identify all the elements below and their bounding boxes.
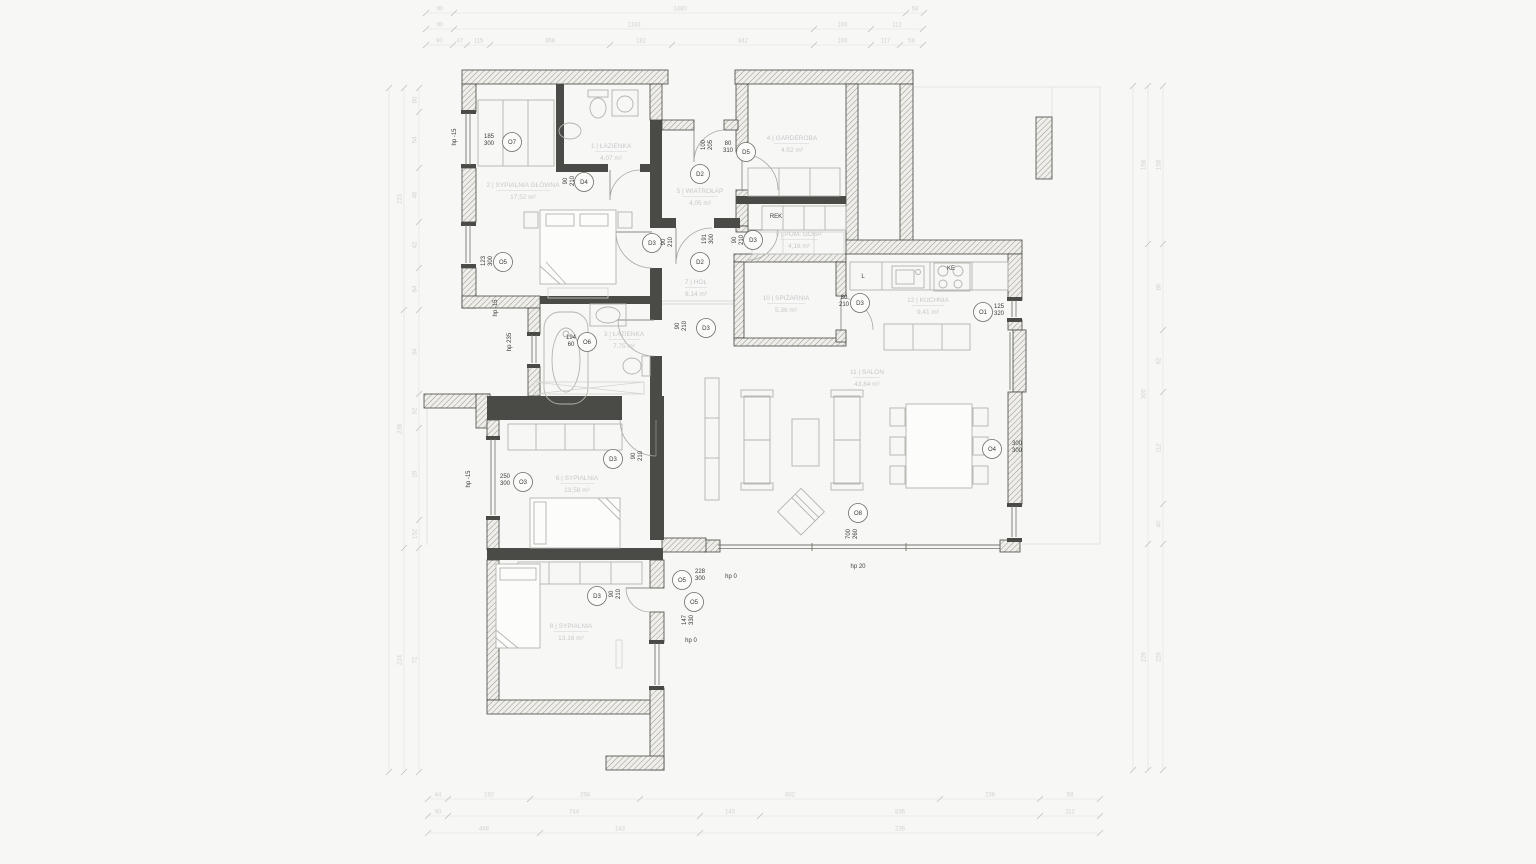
opening-ref: D3 bbox=[702, 326, 710, 332]
chain-dim: 62 bbox=[1157, 357, 1163, 364]
level-annotation: KE bbox=[947, 266, 955, 272]
opening-dim: 90210 bbox=[661, 236, 674, 247]
room-label: 7 | HOL bbox=[685, 279, 708, 286]
chain-dim: 223 bbox=[398, 193, 404, 204]
chain-dim: 226 bbox=[1157, 651, 1163, 662]
chain-dim: 44 bbox=[435, 793, 442, 799]
chain-dim: 80 bbox=[413, 96, 419, 103]
chain-dim: 236 bbox=[895, 827, 906, 833]
chain-dim: 112 bbox=[1065, 810, 1075, 816]
chair bbox=[890, 466, 905, 484]
chain-dim: 86 bbox=[1157, 283, 1163, 290]
opening-dim: 125320 bbox=[994, 304, 1005, 317]
chain-dim: 115 bbox=[474, 39, 484, 45]
chain-dim: 117 bbox=[881, 39, 891, 45]
toilet-tank bbox=[642, 356, 650, 376]
chain-dim: 182 bbox=[636, 39, 647, 45]
opening-ref: O5 bbox=[499, 260, 508, 266]
tv-unit bbox=[705, 378, 719, 500]
dim-height: 300 bbox=[484, 141, 495, 147]
chain-dim: 448 bbox=[479, 827, 490, 833]
opening-dim: 300300 bbox=[1012, 441, 1023, 454]
nightstand bbox=[524, 212, 538, 228]
room-area: 9,41 m² bbox=[917, 309, 940, 316]
chain-dim: 836 bbox=[895, 810, 906, 816]
dim-width: 191 bbox=[702, 233, 708, 244]
chain-dim: 72 bbox=[413, 656, 419, 663]
dim-width: 90 bbox=[732, 236, 738, 243]
dim-width: 228 bbox=[695, 569, 706, 575]
level-annotation: hp -15 bbox=[452, 128, 458, 146]
opening-ref: D3 bbox=[648, 241, 656, 247]
walls-interior bbox=[461, 84, 1022, 690]
chain-dim: 58 bbox=[912, 7, 919, 13]
opening-dim: 90210 bbox=[609, 588, 622, 599]
opening-dim: 250300 bbox=[500, 474, 511, 487]
opening-ref: O1 bbox=[979, 310, 988, 316]
opening-dim: 80310 bbox=[723, 141, 734, 154]
toilet-icon bbox=[623, 358, 641, 374]
dim-height: 210 bbox=[682, 320, 688, 331]
dim-height: 60 bbox=[568, 342, 575, 348]
chair bbox=[890, 437, 905, 455]
room-area: 5,36 m² bbox=[775, 307, 798, 314]
chain-dim: 40 bbox=[1157, 520, 1163, 527]
chain-dim: 158 bbox=[1157, 159, 1163, 170]
chain-dim: 298 bbox=[580, 793, 591, 799]
opening-ref: O5 bbox=[690, 600, 699, 606]
chain-dim: 300 bbox=[1142, 388, 1148, 399]
opening-ref: O3 bbox=[519, 480, 528, 486]
dim-height: 210 bbox=[570, 175, 576, 186]
kitchen-island bbox=[884, 324, 970, 350]
room-area: 7,75 m² bbox=[613, 343, 636, 350]
chain-dim: 143 bbox=[725, 810, 736, 816]
room-area: 13,16 m² bbox=[558, 635, 584, 642]
dim-width: 80 bbox=[841, 295, 848, 301]
chain-dim: 183 bbox=[837, 39, 848, 45]
room-label: 6 | SYPIALNIA bbox=[556, 475, 599, 482]
dim-height: 210 bbox=[616, 588, 622, 599]
dim-height: 300 bbox=[709, 233, 715, 244]
opening-dim: 185300 bbox=[484, 134, 495, 147]
opening-ref: D5 bbox=[742, 150, 750, 156]
chain-dim: 158 bbox=[1142, 159, 1148, 170]
room-area: 13,58 m² bbox=[564, 487, 590, 494]
bed bbox=[540, 210, 616, 284]
room-label: 4 | GARDEROBA bbox=[767, 135, 818, 142]
chain-dim: 58 bbox=[908, 39, 915, 45]
chair bbox=[973, 466, 988, 484]
room-area: 4,07 m² bbox=[600, 155, 623, 162]
furniture bbox=[478, 90, 1008, 668]
chain-dim: 226 bbox=[1142, 651, 1148, 662]
dim-height: 260 bbox=[853, 528, 859, 539]
chain-dim: 54 bbox=[413, 136, 419, 143]
room-label: 8 | SYPIALNIA bbox=[550, 623, 593, 630]
dim-width: 123 bbox=[481, 255, 487, 266]
dim-width: 90 bbox=[631, 452, 637, 459]
opening-dim: 90210 bbox=[732, 234, 745, 245]
dim-height: 210 bbox=[638, 450, 644, 461]
opening-dim: 90210 bbox=[675, 320, 688, 331]
chain-dim: 744 bbox=[569, 810, 580, 816]
opening-ref: O8 bbox=[854, 511, 863, 517]
dim-width: 250 bbox=[500, 474, 511, 480]
chain-dim: 112 bbox=[1157, 443, 1163, 453]
level-annotation: hp -15 bbox=[493, 299, 499, 317]
room-area: 4,16 m² bbox=[788, 243, 811, 250]
dim-height: 310 bbox=[723, 148, 734, 154]
dim-height: 210 bbox=[668, 236, 674, 247]
opening-ref: D2 bbox=[696, 260, 704, 266]
opening-dim: 147330 bbox=[682, 614, 695, 625]
opening-ref: O4 bbox=[988, 447, 997, 453]
dim-height: 300 bbox=[1012, 448, 1023, 454]
chain-dim: 46 bbox=[413, 191, 419, 198]
chain-dim: 802 bbox=[785, 793, 796, 799]
kitchen-counter bbox=[850, 262, 1008, 290]
dim-height: 300 bbox=[488, 255, 494, 266]
dim-width: 125 bbox=[994, 304, 1005, 310]
chain-dim: 92 bbox=[413, 407, 419, 414]
level-annotation: hp 0 bbox=[685, 638, 697, 644]
chain-dim: 183 bbox=[837, 23, 848, 29]
dim-height: 210 bbox=[839, 302, 850, 308]
level-annotation: L bbox=[861, 274, 865, 280]
dim-height: 300 bbox=[500, 481, 511, 487]
toilet-tank bbox=[588, 90, 608, 97]
dim-height: 330 bbox=[689, 614, 695, 625]
opening-dim: 123300 bbox=[481, 255, 494, 266]
level-annotation: hp 0 bbox=[725, 574, 737, 580]
chain-dim: 34 bbox=[413, 348, 419, 355]
chain-dim: 842 bbox=[738, 39, 749, 45]
dim-width: 700 bbox=[846, 528, 852, 539]
room-label: 12 | KUCHNIA bbox=[907, 297, 949, 304]
opening-dim: 90210 bbox=[563, 175, 576, 186]
dim-height: 205 bbox=[708, 139, 714, 150]
chain-dim: 47 bbox=[457, 39, 464, 45]
opening-ref: D4 bbox=[580, 180, 588, 186]
opening-dim: 700260 bbox=[846, 528, 859, 539]
opening-dim: 191300 bbox=[702, 233, 715, 244]
dim-width: 300 bbox=[1012, 441, 1023, 447]
toilet-icon bbox=[590, 98, 606, 118]
chain-dim: 1183 bbox=[628, 23, 642, 29]
chain-dim: 152 bbox=[413, 528, 419, 539]
dim-width: 185 bbox=[484, 134, 495, 140]
chain-dim: 90 bbox=[437, 7, 444, 13]
chain-dim: 238 bbox=[985, 793, 996, 799]
dim-width: 194 bbox=[566, 335, 577, 341]
opening-dim: 228300 bbox=[695, 569, 706, 582]
dining-table bbox=[906, 404, 972, 488]
room-label: 1 | ŁAZIENKA bbox=[591, 143, 632, 150]
chain-dim: 238 bbox=[398, 423, 404, 434]
dim-width: 90 bbox=[675, 322, 681, 329]
dim-width: 90 bbox=[661, 238, 667, 245]
room-label: 9 | POM. GOSP. bbox=[775, 231, 822, 238]
opening-dim: 80210 bbox=[839, 295, 850, 308]
chair bbox=[973, 408, 988, 426]
dim-height: 300 bbox=[695, 576, 706, 582]
dim-height: 320 bbox=[994, 311, 1005, 317]
chair bbox=[890, 408, 905, 426]
floor-plan-canvas: 1 | ŁAZIENKA4,07 m²2 | SYPIALNIA GŁÓWNA1… bbox=[0, 0, 1536, 864]
level-annotation: hp 235 bbox=[507, 332, 513, 351]
opening-ref: D3 bbox=[609, 457, 617, 463]
room-label: 3 | ŁAZIENKA bbox=[604, 331, 645, 338]
level-annotation: hp 20 bbox=[850, 564, 866, 570]
opening-dim: 100205 bbox=[701, 139, 714, 150]
chain-dim: 84 bbox=[413, 285, 419, 292]
opening-ref: D3 bbox=[749, 238, 757, 244]
room-label: 2 | SYPIALNIA GŁÓWNA bbox=[487, 180, 561, 189]
armchair bbox=[778, 488, 825, 535]
room-area: 4,05 m² bbox=[689, 200, 712, 207]
opening-dim: 19460 bbox=[566, 335, 577, 348]
dim-width: 147 bbox=[682, 614, 688, 625]
chain-dim: 42 bbox=[413, 241, 419, 248]
level-annotation: hp -15 bbox=[466, 470, 472, 488]
room-area: 4,52 m² bbox=[781, 147, 804, 154]
chain-dim: 1480 bbox=[673, 7, 687, 13]
chain-dim: 143 bbox=[615, 827, 626, 833]
opening-ref: D2 bbox=[696, 172, 704, 178]
room-area: 8,14 m² bbox=[685, 291, 708, 298]
room-label: 10 | SPIŻARNIA bbox=[763, 293, 811, 302]
bed bbox=[530, 498, 620, 548]
dim-height: 210 bbox=[739, 234, 745, 245]
chain-dim: 28 bbox=[413, 470, 419, 477]
kitchen-sink-icon bbox=[892, 266, 924, 288]
opening-ref: D3 bbox=[593, 594, 601, 600]
dim-width: 80 bbox=[725, 141, 732, 147]
room-label: 11 | SALON bbox=[850, 369, 884, 376]
chain-dim: 90 bbox=[435, 810, 442, 816]
chain-dim: 192 bbox=[484, 793, 495, 799]
opening-dim: 90210 bbox=[631, 450, 644, 461]
chain-dim: 90 bbox=[436, 39, 443, 45]
level-annotation: REK bbox=[770, 214, 782, 220]
dim-width: 90 bbox=[609, 590, 615, 597]
dim-width: 100 bbox=[701, 139, 707, 150]
opening-ref: O5 bbox=[678, 578, 687, 584]
room-area: 43,84 m² bbox=[854, 381, 880, 388]
closet-shelves bbox=[748, 168, 840, 196]
dim-width: 90 bbox=[563, 177, 569, 184]
chain-dim: 58 bbox=[1067, 793, 1074, 799]
chain-dim: 90 bbox=[437, 23, 444, 29]
chain-dim: 224 bbox=[398, 654, 404, 665]
room-area: 17,52 m² bbox=[510, 194, 536, 201]
nightstand bbox=[618, 212, 632, 228]
opening-ref: O7 bbox=[508, 140, 517, 146]
chain-dim: 368 bbox=[545, 39, 556, 45]
room-label: 5 | WIATROŁAP bbox=[677, 188, 724, 195]
chain-dim: 112 bbox=[892, 23, 902, 29]
opening-ref: O6 bbox=[583, 340, 592, 346]
opening-ref: D3 bbox=[856, 301, 864, 307]
coffee-table bbox=[792, 419, 819, 466]
